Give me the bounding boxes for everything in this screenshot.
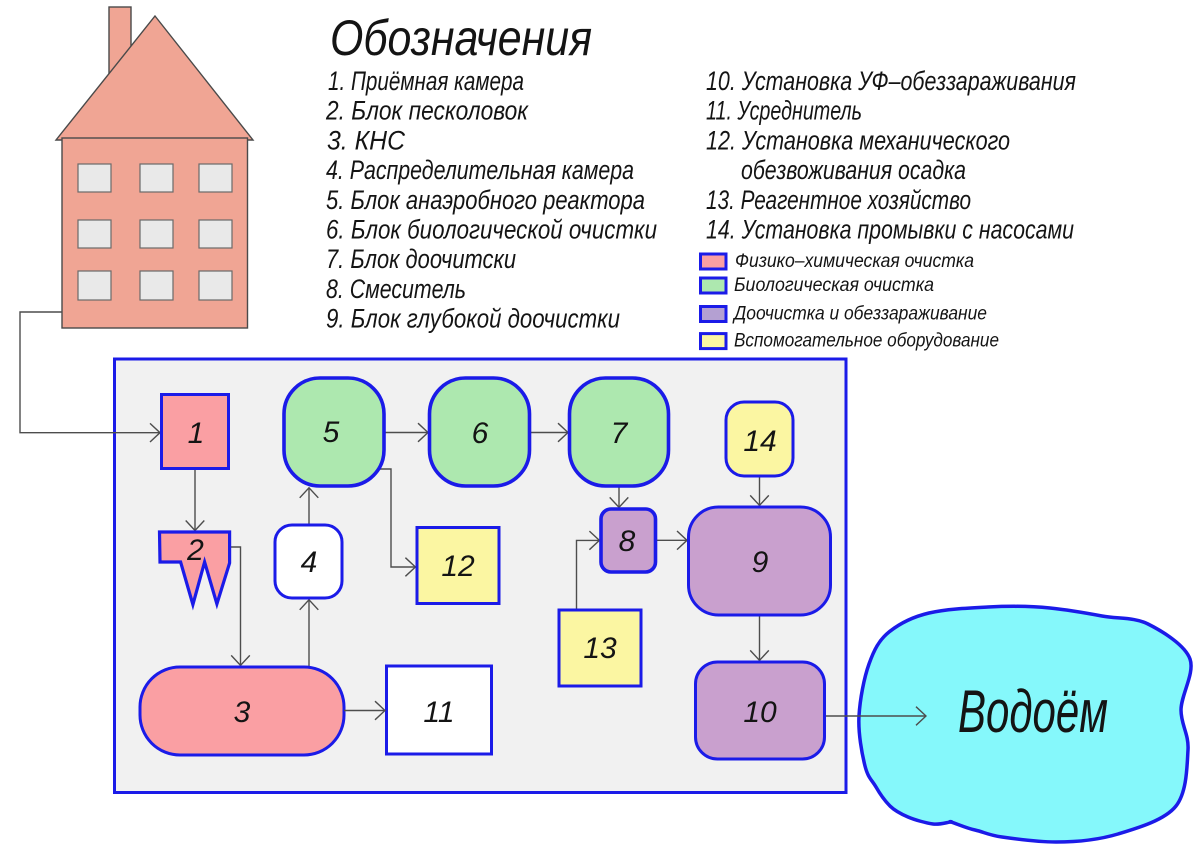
svg-text:10: 10 (743, 696, 777, 729)
svg-text:6: 6 (472, 417, 489, 450)
svg-text:7. Блок доочитски: 7. Блок доочитски (326, 244, 516, 274)
svg-text:2: 2 (186, 534, 204, 567)
svg-text:13. Реагентное хозяйство: 13. Реагентное хозяйство (706, 185, 971, 215)
svg-text:обезвоживания осадка: обезвоживания осадка (741, 155, 966, 185)
svg-text:13: 13 (583, 632, 617, 665)
svg-text:Биологическая очистка: Биологическая очистка (734, 275, 934, 296)
svg-text:7: 7 (611, 417, 629, 450)
svg-text:4. Распределительная камера: 4. Распределительная камера (326, 155, 634, 185)
svg-text:8. Смеситель: 8. Смеситель (326, 274, 466, 304)
svg-text:9: 9 (752, 546, 769, 579)
svg-text:12: 12 (441, 550, 475, 583)
svg-text:10. Установка УФ–обеззараживан: 10. Установка УФ–обеззараживания (706, 66, 1076, 96)
svg-text:Водоём: Водоём (958, 678, 1108, 745)
svg-text:5. Блок анаэробного реактора: 5. Блок анаэробного реактора (326, 185, 645, 215)
svg-text:6. Блок биологической очистки: 6. Блок биологической очистки (326, 215, 657, 245)
svg-text:9. Блок глубокой доочистки: 9. Блок глубокой доочистки (326, 304, 620, 334)
svg-text:5: 5 (323, 416, 340, 449)
svg-text:3. КНС: 3. КНС (327, 125, 405, 155)
svg-text:14. Установка промывки с насос: 14. Установка промывки с насосами (706, 215, 1074, 245)
svg-text:1: 1 (188, 417, 205, 450)
svg-text:2. Блок песколовок: 2. Блок песколовок (325, 96, 529, 126)
svg-text:14: 14 (743, 425, 776, 458)
svg-text:1. Приёмная камера: 1. Приёмная камера (328, 66, 524, 96)
svg-text:3: 3 (234, 696, 251, 729)
svg-text:Обозначения: Обозначения (330, 10, 592, 66)
svg-text:Физико–химическая очистка: Физико–химическая очистка (735, 251, 974, 272)
svg-text:Доочистка и обеззараживание: Доочистка и обеззараживание (732, 304, 987, 325)
svg-text:8: 8 (619, 525, 636, 558)
svg-text:4: 4 (301, 546, 318, 579)
svg-text:Вспомогательное оборудование: Вспомогательное оборудование (734, 331, 999, 352)
svg-text:11. Усреднитель: 11. Усреднитель (706, 96, 862, 126)
svg-text:11: 11 (423, 696, 454, 729)
svg-text:12. Установка механического: 12. Установка механического (706, 125, 1010, 155)
